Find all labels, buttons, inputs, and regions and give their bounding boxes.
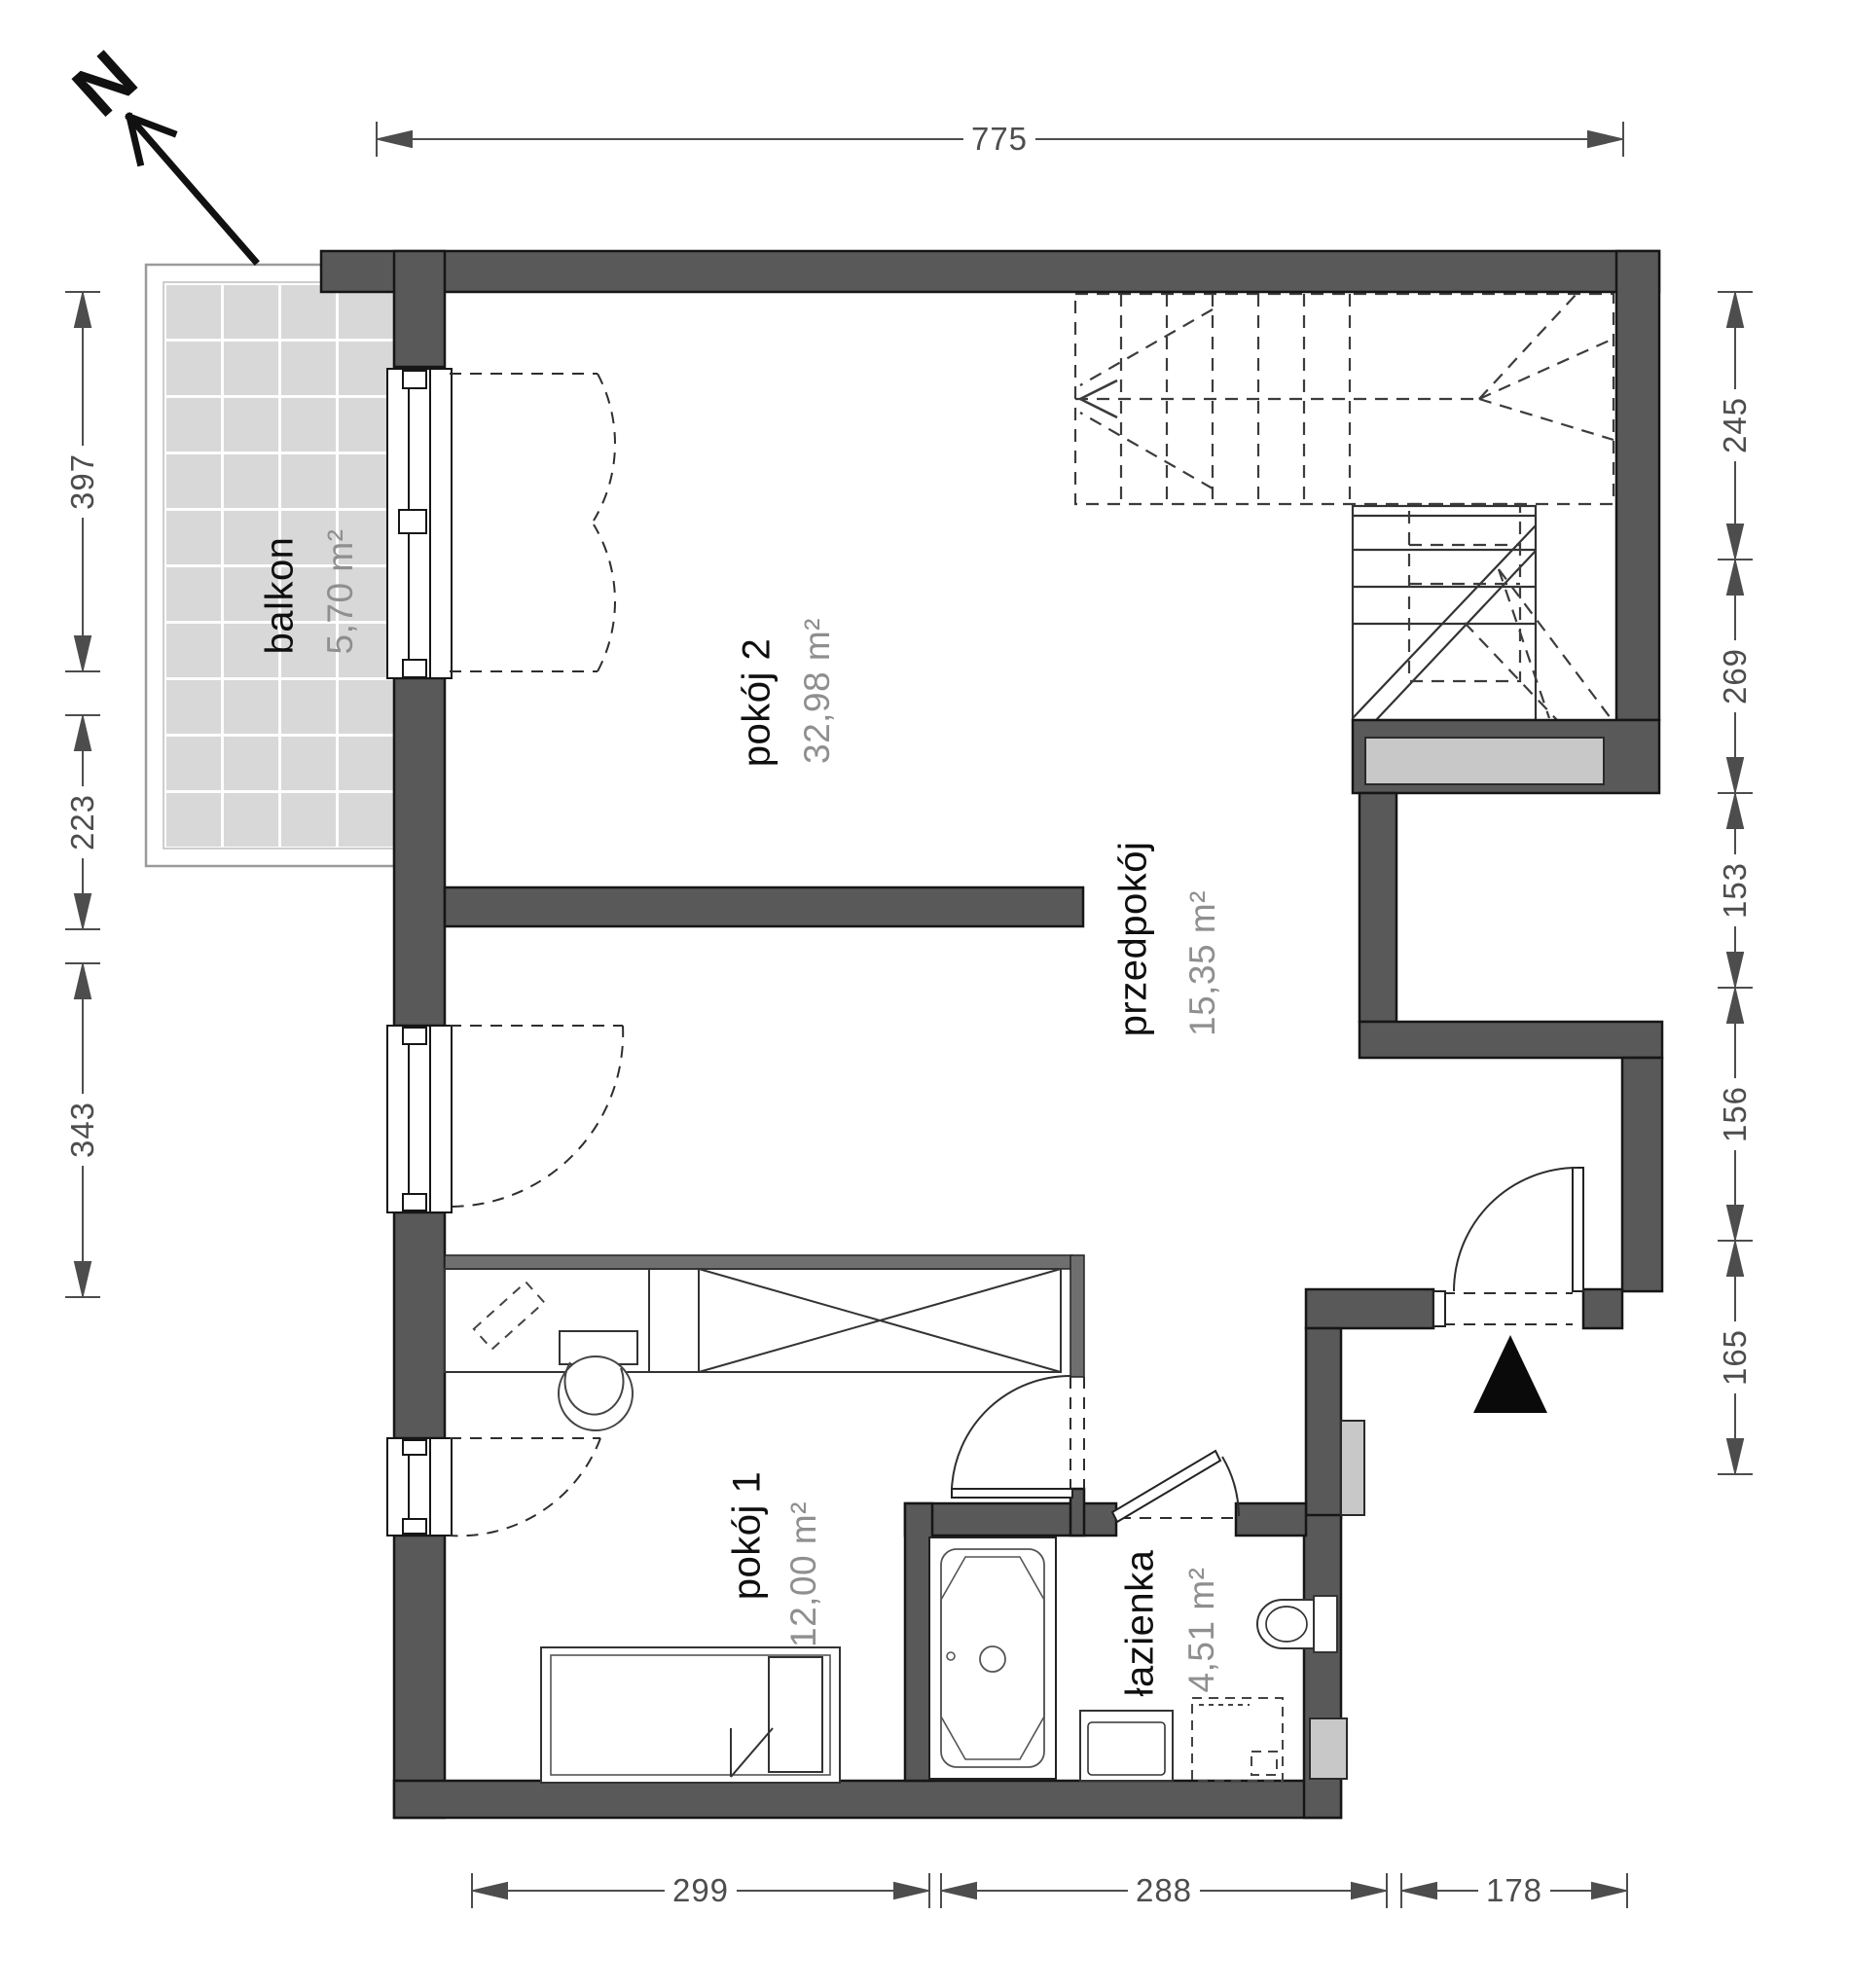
dim-left-223: 223 xyxy=(64,786,101,858)
room-area-przedpokoj: 15,35 m² xyxy=(1182,890,1223,1036)
door-bathroom xyxy=(1112,1451,1239,1522)
room-area-pokoj2: 32,98 m² xyxy=(797,618,838,764)
room-label-balkon: balkon xyxy=(259,537,303,655)
north-arrow-icon xyxy=(129,117,255,261)
wardrobe xyxy=(445,1269,1061,1372)
dim-bottom-288: 288 xyxy=(1128,1872,1200,1909)
dim-bottom-299: 299 xyxy=(665,1872,737,1909)
dim-left-343: 343 xyxy=(64,1094,101,1166)
dim-top-775: 775 xyxy=(963,121,1035,158)
room-area-balkon: 5,70 m² xyxy=(320,529,361,655)
dim-left-397: 397 xyxy=(64,446,101,518)
entrance-arrow-icon xyxy=(1473,1335,1547,1413)
room-label-pokoj1: pokój 1 xyxy=(726,1471,770,1600)
dim-right-165: 165 xyxy=(1717,1321,1754,1393)
window-middle xyxy=(387,1026,452,1212)
door-entrance xyxy=(1433,1168,1583,1326)
room-label-pokoj2: pokój 2 xyxy=(736,638,779,767)
toilet xyxy=(1257,1596,1337,1652)
balcony-door-window xyxy=(387,369,452,678)
wall-panels xyxy=(1310,738,1604,1779)
dim-bottom-178: 178 xyxy=(1478,1872,1550,1909)
staircase xyxy=(1075,294,1613,720)
sink xyxy=(1080,1711,1173,1781)
room-label-przedpokoj: przedpokój xyxy=(1112,842,1156,1037)
floor-plan: N 775 397 223 343 245 269 153 156 165 29… xyxy=(0,0,1849,1988)
room-area-lazienka: 4,51 m² xyxy=(1181,1568,1222,1693)
bed xyxy=(541,1647,840,1783)
dim-right-153: 153 xyxy=(1717,854,1754,926)
room-label-lazienka: łazienka xyxy=(1119,1550,1163,1697)
plan-drawing xyxy=(0,0,1849,1988)
bathtub xyxy=(929,1537,1056,1779)
door-pokoj1 xyxy=(952,1376,1084,1498)
window-lower xyxy=(387,1438,452,1536)
dim-right-269: 269 xyxy=(1717,640,1754,712)
room-area-pokoj1: 12,00 m² xyxy=(783,1501,824,1647)
dim-right-156: 156 xyxy=(1717,1078,1754,1150)
washing-machine xyxy=(1192,1698,1283,1781)
dim-right-245: 245 xyxy=(1717,389,1754,461)
pillow xyxy=(769,1657,822,1772)
